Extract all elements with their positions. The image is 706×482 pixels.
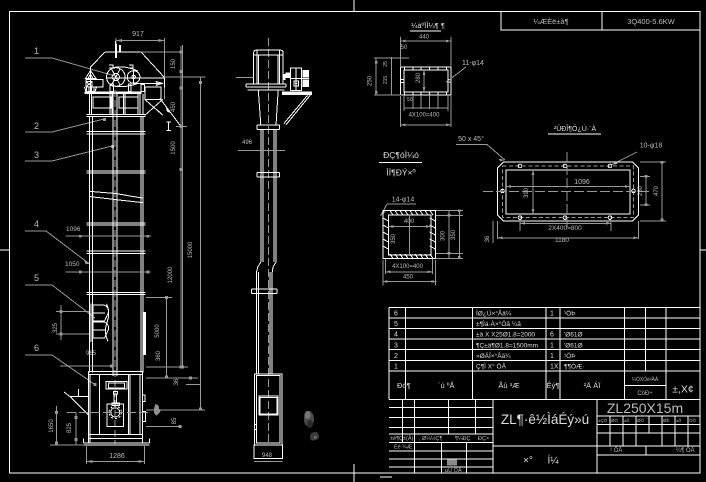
- svg-text:ÐÇ×: ÐÇ×: [478, 436, 489, 442]
- svg-text:14-φ14: 14-φ14: [392, 197, 415, 204]
- svg-text:440: 440: [419, 35, 430, 41]
- svg-text:496: 496: [242, 140, 253, 146]
- svg-text:1500: 1500: [171, 141, 177, 155]
- svg-text:1X: 1X: [550, 364, 559, 371]
- svg-text:ØÈ: ØÈ: [663, 417, 670, 423]
- svg-text:5: 5: [34, 273, 39, 283]
- svg-text:1050: 1050: [65, 261, 80, 268]
- svg-text:5000: 5000: [155, 324, 161, 338]
- svg-text:µÚ ÕÅ: µÚ ÕÅ: [445, 467, 462, 474]
- svg-text:6: 6: [34, 343, 39, 353]
- svg-text:Ðò¶: Ðò¶: [397, 381, 411, 390]
- svg-text:5: 5: [394, 321, 398, 328]
- svg-text:12000: 12000: [168, 266, 174, 283]
- svg-text:350: 350: [391, 233, 397, 244]
- svg-text:215: 215: [383, 76, 389, 85]
- svg-text:150: 150: [171, 58, 177, 69]
- svg-text:825: 825: [67, 422, 73, 433]
- svg-text:1: 1: [550, 342, 554, 349]
- svg-text:15000: 15000: [188, 241, 194, 258]
- svg-text:ÌØ¿Ú×°Åä¼: ÌØ¿Ú×°Åä¼: [476, 309, 512, 318]
- svg-text:1: 1: [34, 46, 39, 56]
- svg-text:3Q400-5.6KW: 3Q400-5.6KW: [627, 17, 675, 26]
- svg-text:±ð: ±ð: [624, 417, 629, 423]
- svg-text:CöÐ÷: CöÐ÷: [637, 391, 653, 397]
- svg-text:1: 1: [550, 311, 554, 318]
- svg-text:ZL¶·ê½ÌáÉý»ú: ZL¶·ê½ÌáÉý»ú: [501, 412, 589, 427]
- svg-text:450: 450: [171, 101, 177, 112]
- svg-text:2X400=800: 2X400=800: [548, 225, 582, 232]
- svg-text:±ÇÖ: ±ÇÖ: [598, 417, 608, 423]
- svg-text:50: 50: [407, 97, 413, 103]
- svg-text:948: 948: [262, 453, 273, 459]
- svg-text:4X100=400: 4X100=400: [409, 113, 441, 119]
- svg-text:1096: 1096: [574, 179, 590, 186]
- svg-text:²Ä ÁÏ: ²Ä ÁÏ: [584, 381, 602, 390]
- svg-text:300: 300: [441, 230, 447, 241]
- svg-text:»ØÁÏ×°Åä¼: »ØÁÏ×°Åä¼: [476, 351, 511, 360]
- svg-text:250: 250: [638, 185, 644, 196]
- svg-text:±,X¢: ±,X¢: [672, 384, 694, 396]
- svg-text:4: 4: [394, 332, 398, 339]
- svg-text:350: 350: [451, 229, 457, 240]
- svg-text:3: 3: [394, 342, 398, 349]
- svg-text:470: 470: [654, 185, 660, 196]
- svg-text:2: 2: [394, 353, 398, 360]
- svg-text:Êý¶: Êý¶: [547, 381, 560, 390]
- svg-text:ØÖ: ØÖ: [637, 417, 645, 423]
- svg-text:¹ÖÞ: ¹ÖÞ: [564, 310, 576, 318]
- svg-text:ÌÏ¶ÐÝ×º: ÌÏ¶ÐÝ×º: [386, 168, 415, 178]
- svg-text:ZL250X15m: ZL250X15m: [607, 400, 683, 416]
- svg-text:280: 280: [416, 72, 422, 83]
- svg-text:917: 917: [132, 31, 144, 38]
- svg-text:²ÛÐÎ¶Ô¿Ú·¨À: ²ÛÐÎ¶Ô¿Ú·¨À: [554, 124, 597, 133]
- svg-text:¹ ÖÅ: ¹ ÖÅ: [610, 447, 622, 454]
- svg-text:'Ø61Ø: 'Ø61Ø: [564, 342, 583, 349]
- svg-text:965: 965: [86, 351, 97, 357]
- svg-text:×°: ×°: [523, 456, 533, 467]
- svg-text:¹ÖÞ: ¹ÖÞ: [564, 352, 576, 360]
- svg-text:¼àºÏÌ¼¶ ¶: ¼àºÏÌ¼¶ ¶: [411, 21, 445, 30]
- svg-text:±ä X X25Ø1.8=2000: ±ä X X25Ø1.8=2000: [476, 332, 535, 339]
- svg-text:ÐÇ¶óÌ¼ó: ÐÇ¶óÌ¼ó: [383, 150, 419, 160]
- svg-text:1096: 1096: [66, 226, 81, 233]
- svg-text:¶¶ÒÆ·: ¶¶ÒÆ·: [564, 362, 585, 371]
- svg-text:1: 1: [394, 364, 398, 371]
- svg-text:±¶Ìá·À×°Öã ¼ã: ±¶Ìá·À×°Öã ¼ã: [476, 319, 521, 328]
- svg-text:36: 36: [174, 378, 180, 385]
- svg-text:25: 25: [383, 61, 389, 67]
- svg-text:'Ø61Ø: 'Ø61Ø: [564, 332, 583, 339]
- svg-text:11-φ14: 11-φ14: [462, 60, 484, 67]
- svg-text:Éè ¼Æ: Éè ¼Æ: [394, 444, 413, 451]
- svg-text:85: 85: [172, 417, 178, 424]
- svg-text:±ð: ±ð: [676, 417, 681, 423]
- svg-text:325: 325: [53, 322, 59, 333]
- svg-text:¶¼ÐÇ: ¶¼ÐÇ: [455, 436, 471, 442]
- svg-text:6: 6: [550, 332, 554, 339]
- svg-text:36: 36: [485, 235, 491, 242]
- svg-text:¼ÓXÓë²ÄÁ: ¼ÓXÓë²ÄÁ: [632, 376, 659, 383]
- svg-text:4: 4: [34, 219, 39, 229]
- svg-text:10-φ18: 10-φ18: [640, 143, 663, 150]
- svg-text:1286: 1286: [109, 453, 125, 460]
- svg-text:50 x 45°: 50 x 45°: [458, 135, 484, 143]
- svg-text:2: 2: [34, 121, 39, 131]
- svg-text:Ç¶Ì X° ÖÅ: Ç¶Ì X° ÖÅ: [476, 362, 507, 371]
- svg-text:390: 390: [524, 187, 530, 198]
- svg-text:250: 250: [368, 75, 374, 86]
- svg-text:¼ÆÈë±à¶: ¼ÆÈë±à¶: [533, 17, 568, 26]
- svg-text:¶Ç±ä¶Ø1.8=1500mm: ¶Ç±ä¶Ø1.8=1500mm: [476, 342, 538, 349]
- svg-text:´ú ºÅ: ´ú ºÅ: [438, 381, 455, 390]
- svg-text:Ãû ³Æ: Ãû ³Æ: [498, 381, 520, 390]
- svg-text:6: 6: [394, 311, 398, 318]
- svg-text:1: 1: [550, 353, 554, 360]
- svg-text:ØÒ: ØÒ: [611, 417, 619, 423]
- svg-text:450: 450: [403, 274, 414, 280]
- svg-text:Í¼: Í¼: [547, 454, 559, 467]
- svg-text:50: 50: [401, 45, 408, 51]
- svg-text:1650: 1650: [49, 419, 55, 433]
- svg-text:4X100=400: 4X100=400: [392, 264, 424, 270]
- svg-text:ÓÖ: ÓÖ: [689, 417, 697, 423]
- svg-text:360: 360: [156, 350, 162, 361]
- svg-text:, Ø¼½Ç¶: , Ø¼½Ç¶: [419, 435, 442, 442]
- svg-text:1180: 1180: [555, 237, 569, 244]
- svg-text:±ê¶Ç±(Å): ±ê¶Ç±(Å): [390, 435, 414, 442]
- svg-text:¼¶ ÖÅ: ¼¶ ÖÅ: [676, 447, 695, 454]
- svg-text:3: 3: [34, 150, 39, 160]
